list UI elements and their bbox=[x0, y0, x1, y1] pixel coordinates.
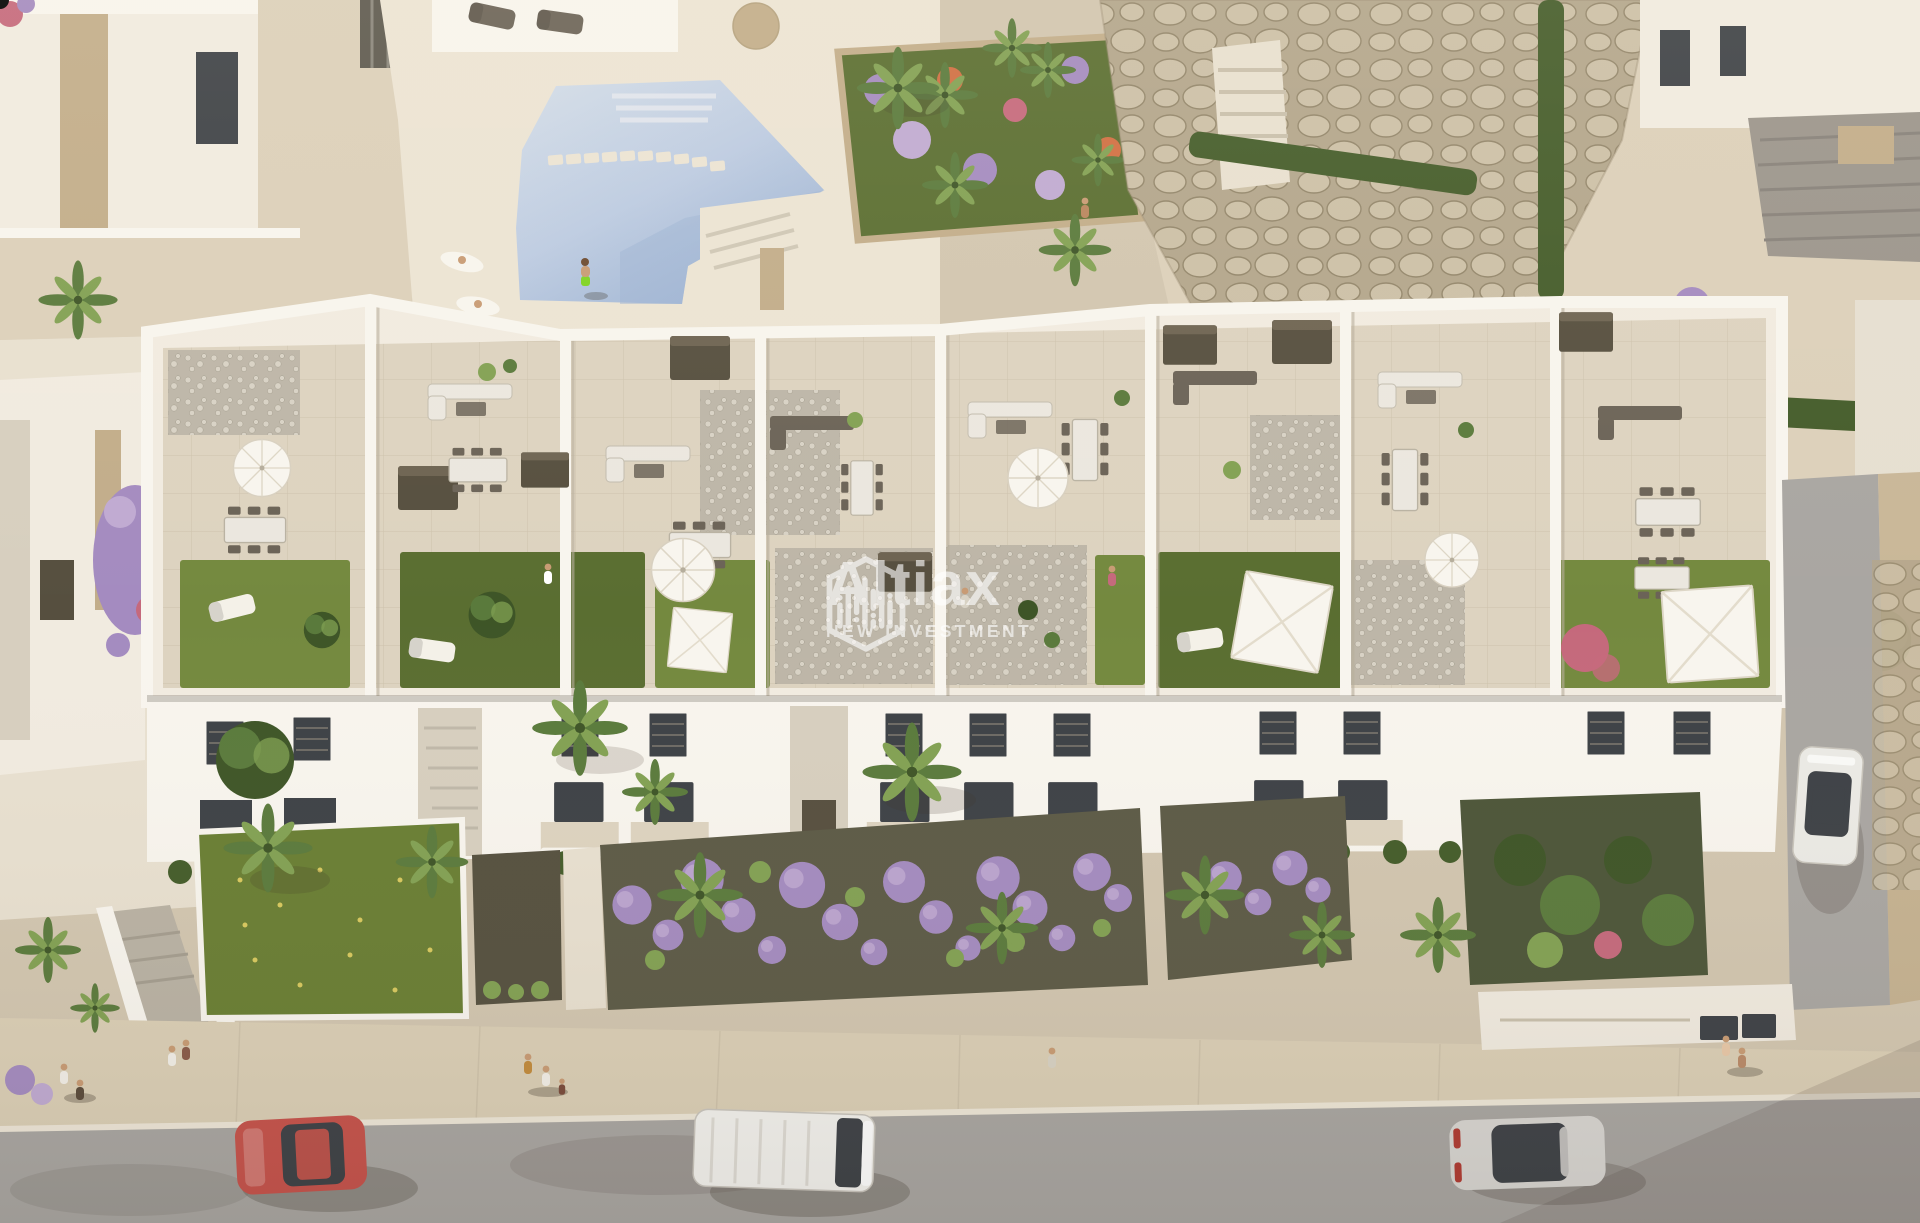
scene-illustration bbox=[0, 0, 1920, 1223]
light-overlay bbox=[0, 0, 1920, 1223]
aerial-render: Altiax NEW INVESTMENT bbox=[0, 0, 1920, 1223]
